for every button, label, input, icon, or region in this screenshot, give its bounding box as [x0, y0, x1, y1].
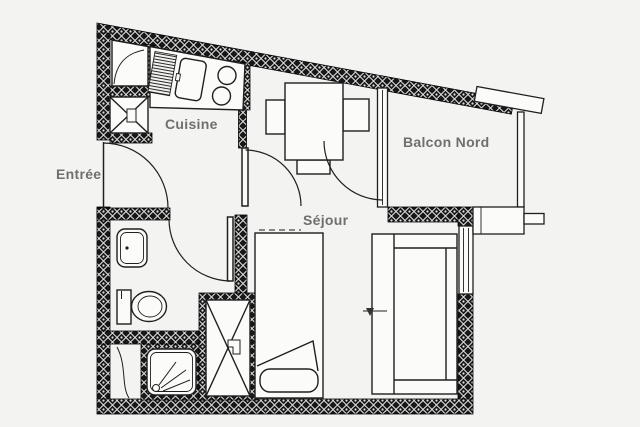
dining-table-set [266, 83, 369, 174]
utility-closet-curve [117, 347, 129, 398]
room-label-balcon-nord: Balcon Nord [403, 134, 490, 150]
kitchen-sink-tap [175, 73, 180, 81]
sofa-frame [372, 234, 457, 394]
room-label-entree: Entrée [56, 166, 101, 182]
bathroom-door-arc [169, 219, 230, 281]
room-label-cuisine: Cuisine [165, 116, 218, 132]
cabinet-bottom-wall [110, 133, 152, 143]
wardrobe [206, 300, 250, 396]
entrance-door [104, 142, 169, 208]
sofa [363, 234, 457, 394]
west-wall-lower [97, 207, 110, 399]
bathroom-sink-drain [125, 246, 128, 249]
chair [343, 99, 369, 131]
south-wall [97, 399, 473, 414]
cabinet-step [127, 109, 136, 122]
shower [147, 349, 196, 395]
bathroom-door-leaf [228, 217, 234, 281]
kitchen-cabinet [110, 97, 148, 133]
kitchen-strip-wall [239, 110, 247, 148]
hall-partition-wall [235, 215, 247, 297]
hob-burner [213, 87, 231, 105]
balcony-box-tab [524, 214, 544, 225]
bathroom-sink [117, 229, 147, 267]
entry-closet [112, 40, 148, 86]
bathroom-north-wall [97, 208, 170, 220]
east-wall [458, 294, 473, 399]
chair [266, 100, 285, 134]
pillow [260, 369, 318, 392]
balcony-rail [518, 112, 525, 207]
bed [255, 230, 323, 398]
bathroom-door [169, 217, 233, 281]
chair [297, 160, 330, 174]
toilet-bowl-inner [138, 296, 162, 317]
hob-burner [218, 67, 236, 85]
bathroom-mid-wall [97, 331, 213, 344]
room-label-sejour: Séjour [303, 212, 348, 228]
shower-head [153, 385, 160, 392]
toilet-tank [117, 290, 131, 324]
bathroom-sink-inner [121, 233, 144, 264]
west-wall-upper [97, 33, 110, 140]
floor-plan: Entrée Cuisine Séjour Balcon Nord [0, 0, 640, 427]
dining-table [285, 83, 343, 160]
balcony-south-wall [388, 207, 460, 222]
balcony-corner-wall [458, 207, 473, 226]
sejour-door-leaf [242, 148, 248, 206]
entrance-door-arc [104, 143, 169, 208]
toilet [117, 290, 167, 324]
east-window [459, 226, 473, 294]
cabinet-top-wall [110, 86, 152, 97]
